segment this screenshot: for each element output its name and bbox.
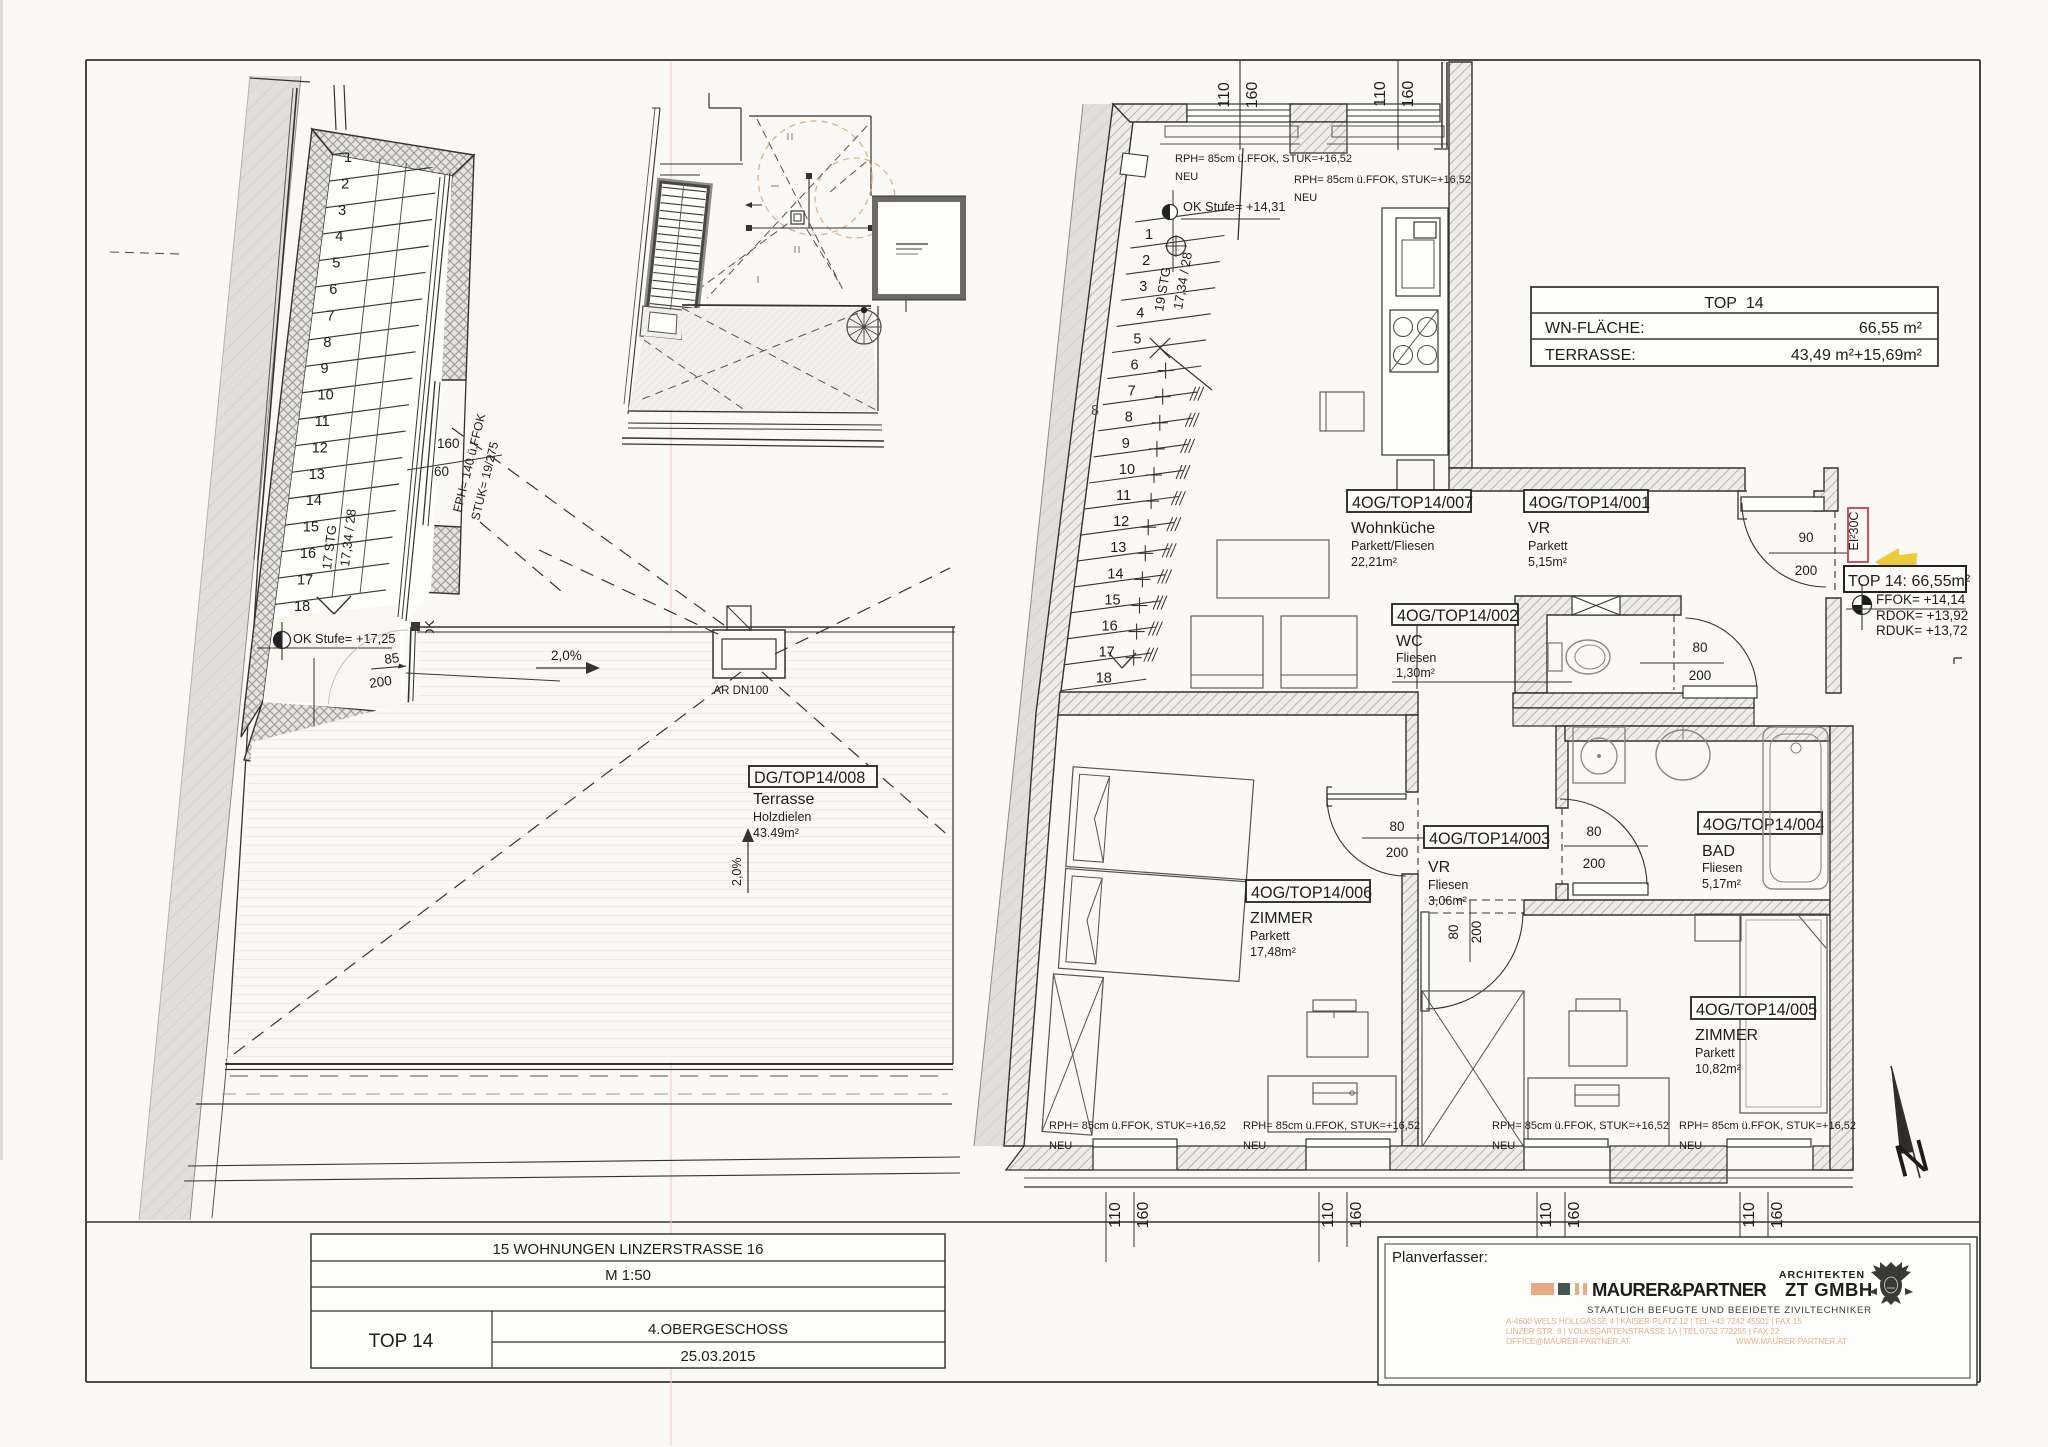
svg-text:22,21m²: 22,21m² xyxy=(1351,555,1397,569)
svg-text:NEU: NEU xyxy=(1175,171,1198,183)
svg-text:8: 8 xyxy=(323,335,331,351)
svg-text:RPH= 85cm ü.FFOK, STUK=+16,52: RPH= 85cm ü.FFOK, STUK=+16,52 xyxy=(1243,1120,1420,1132)
svg-text:9: 9 xyxy=(1122,436,1130,452)
svg-text:13: 13 xyxy=(309,467,325,483)
svg-text:200: 200 xyxy=(1583,856,1606,871)
svg-text:5: 5 xyxy=(1133,331,1141,347)
svg-text:Parkett: Parkett xyxy=(1250,929,1290,943)
svg-text:10: 10 xyxy=(1119,462,1135,478)
svg-text:WWW.MAURER-PARTNER.AT: WWW.MAURER-PARTNER.AT xyxy=(1736,1337,1847,1346)
svg-text:OK Stufe= +17,25: OK Stufe= +17,25 xyxy=(293,631,395,646)
svg-text:16: 16 xyxy=(1102,619,1118,635)
svg-text:160: 160 xyxy=(1348,1202,1365,1229)
svg-text:12: 12 xyxy=(1113,514,1129,530)
svg-text:200: 200 xyxy=(1689,668,1712,683)
svg-text:14: 14 xyxy=(306,493,322,509)
svg-text:10: 10 xyxy=(318,388,334,404)
svg-text:RPH= 85cm ü.FFOK, STUK=+16,52: RPH= 85cm ü.FFOK, STUK=+16,52 xyxy=(1294,174,1471,186)
svg-text:17: 17 xyxy=(297,572,313,588)
svg-text:FFOK= +14,14: FFOK= +14,14 xyxy=(1876,592,1966,607)
svg-text:4.OBERGESCHOSS: 4.OBERGESCHOSS xyxy=(648,1321,788,1338)
svg-text:160: 160 xyxy=(1769,1202,1786,1229)
svg-text:110: 110 xyxy=(1216,82,1233,108)
svg-text:4OG/TOP14/002: 4OG/TOP14/002 xyxy=(1397,607,1518,625)
svg-text:Wohnküche: Wohnküche xyxy=(1351,520,1435,537)
svg-text:Holzdielen: Holzdielen xyxy=(753,810,811,824)
svg-text:43,49 m²+15,69m²: 43,49 m²+15,69m² xyxy=(1791,347,1923,364)
svg-text:2: 2 xyxy=(1142,253,1150,269)
svg-text:6: 6 xyxy=(1131,358,1139,374)
svg-text:2,0%: 2,0% xyxy=(551,648,582,663)
svg-text:9: 9 xyxy=(321,361,329,377)
svg-text:RPH= 85cm ü.FFOK, STUK=+16,52: RPH= 85cm ü.FFOK, STUK=+16,52 xyxy=(1679,1120,1856,1132)
svg-text:TOP 14: TOP 14 xyxy=(369,1331,434,1352)
svg-text:80: 80 xyxy=(1692,640,1707,655)
svg-text:200: 200 xyxy=(368,673,392,691)
svg-text:4OG/TOP14/006: 4OG/TOP14/006 xyxy=(1251,884,1372,902)
svg-text:43.49m²: 43.49m² xyxy=(753,826,799,840)
svg-text:Terrasse: Terrasse xyxy=(753,791,814,808)
svg-text:TERRASSE:: TERRASSE: xyxy=(1545,347,1636,364)
svg-text:8: 8 xyxy=(1125,410,1133,426)
svg-text:110: 110 xyxy=(1741,1202,1758,1228)
svg-text:ZT GMBH: ZT GMBH xyxy=(1785,1279,1873,1300)
svg-text:15 WOHNUNGEN LINZERSTRASSE 16: 15 WOHNUNGEN LINZERSTRASSE 16 xyxy=(493,1241,764,1258)
svg-text:ZIMMER: ZIMMER xyxy=(1250,910,1313,927)
svg-text:Parkett/Fliesen: Parkett/Fliesen xyxy=(1351,539,1434,553)
svg-text:5,15m²: 5,15m² xyxy=(1528,555,1567,569)
svg-text:11: 11 xyxy=(315,414,330,430)
svg-text:NEU: NEU xyxy=(1679,1140,1702,1152)
svg-text:160: 160 xyxy=(1135,1202,1152,1229)
svg-text:160: 160 xyxy=(1400,81,1417,108)
svg-text:WN-FLÄCHE:: WN-FLÄCHE: xyxy=(1545,319,1645,337)
svg-text:2,0%: 2,0% xyxy=(730,858,744,887)
svg-text:18: 18 xyxy=(1096,671,1112,687)
svg-text:5: 5 xyxy=(332,256,340,272)
svg-text:17,48m²: 17,48m² xyxy=(1250,945,1296,959)
svg-text:BAD: BAD xyxy=(1702,843,1735,860)
svg-text:25.03.2015: 25.03.2015 xyxy=(680,1348,755,1365)
svg-text:11: 11 xyxy=(1116,488,1131,504)
svg-text:7: 7 xyxy=(1128,384,1136,400)
svg-text:12: 12 xyxy=(312,440,328,456)
svg-text:15: 15 xyxy=(1104,592,1120,608)
svg-text:66,55 m²: 66,55 m² xyxy=(1859,320,1923,337)
svg-text:4OG/TOP14/005: 4OG/TOP14/005 xyxy=(1696,1001,1817,1019)
svg-text:RPH= 85cm ü.FFOK, STUK=+16,52: RPH= 85cm ü.FFOK, STUK=+16,52 xyxy=(1049,1120,1226,1132)
svg-text:WC: WC xyxy=(1396,633,1423,650)
svg-text:EI²30C: EI²30C xyxy=(1847,512,1861,551)
svg-text:RPH= 85cm ü.FFOK, STUK=+16,52: RPH= 85cm ü.FFOK, STUK=+16,52 xyxy=(1175,153,1352,165)
svg-text:RDUK= +13,72: RDUK= +13,72 xyxy=(1876,623,1968,638)
svg-text:80: 80 xyxy=(1446,924,1461,939)
svg-text:4OG/TOP14/007: 4OG/TOP14/007 xyxy=(1352,494,1473,512)
svg-text:85: 85 xyxy=(383,650,400,667)
svg-text:MAURER&PARTNER: MAURER&PARTNER xyxy=(1592,1279,1766,1300)
svg-text:200: 200 xyxy=(1795,563,1818,578)
svg-text:LINZER STR. 8 | VOLKSGARTENSTR: LINZER STR. 8 | VOLKSGARTENSTRASSE 1A | … xyxy=(1506,1327,1780,1336)
svg-text:200: 200 xyxy=(1386,845,1409,860)
svg-text:Parkett: Parkett xyxy=(1695,1046,1735,1060)
svg-text:Fliesen: Fliesen xyxy=(1428,878,1468,892)
svg-text:60: 60 xyxy=(434,464,449,479)
svg-text:5,17m²: 5,17m² xyxy=(1702,877,1741,891)
svg-text:4OG/TOP14/003: 4OG/TOP14/003 xyxy=(1429,830,1550,848)
svg-text:3: 3 xyxy=(1139,279,1147,295)
svg-text:Parkett: Parkett xyxy=(1528,539,1568,553)
svg-text:Fliesen: Fliesen xyxy=(1702,861,1742,875)
svg-text:110: 110 xyxy=(1538,1202,1555,1228)
svg-text:90: 90 xyxy=(1798,530,1813,545)
svg-text:7: 7 xyxy=(326,308,334,324)
svg-text:A-4600 WELS HOLLGASSE 4 | KAIS: A-4600 WELS HOLLGASSE 4 | KAISER-PLATZ 1… xyxy=(1506,1317,1802,1326)
svg-text:M 1:50: M 1:50 xyxy=(605,1267,651,1284)
svg-text:OK Stufe= +14,31: OK Stufe= +14,31 xyxy=(1183,199,1285,214)
svg-text:NEU: NEU xyxy=(1294,192,1317,204)
svg-text:80: 80 xyxy=(1586,824,1601,839)
svg-text:4: 4 xyxy=(335,229,343,245)
svg-text:3,06m²: 3,06m² xyxy=(1428,894,1467,908)
svg-text:110: 110 xyxy=(1320,1202,1337,1228)
svg-text:VR: VR xyxy=(1528,520,1550,537)
svg-text:RPH= 85cm ü.FFOK, STUK=+16,52: RPH= 85cm ü.FFOK, STUK=+16,52 xyxy=(1492,1120,1669,1132)
svg-text:Fliesen: Fliesen xyxy=(1396,651,1436,665)
svg-text:110: 110 xyxy=(1372,81,1389,107)
svg-text:Planverfasser:: Planverfasser: xyxy=(1392,1249,1488,1266)
svg-text:160: 160 xyxy=(1244,82,1261,109)
svg-text:STAATLICH BEFUGTE UND BEEIDETE: STAATLICH BEFUGTE UND BEEIDETE ZIVILTECH… xyxy=(1587,1305,1872,1316)
svg-text:1: 1 xyxy=(1145,227,1153,243)
svg-text:6: 6 xyxy=(329,282,337,298)
svg-text:TOP 14: TOP 14 xyxy=(1704,295,1763,312)
svg-text:110: 110 xyxy=(1107,1202,1124,1228)
svg-text:NEU: NEU xyxy=(1243,1140,1266,1152)
svg-text:80: 80 xyxy=(1389,819,1404,834)
svg-text:18: 18 xyxy=(294,599,310,615)
svg-text:17: 17 xyxy=(1099,645,1115,661)
svg-text:2: 2 xyxy=(341,176,349,192)
svg-text:1,30m²: 1,30m² xyxy=(1396,666,1435,680)
svg-text:160: 160 xyxy=(1566,1202,1583,1229)
svg-text:OFFICE@MAURER-PARTNER.AT: OFFICE@MAURER-PARTNER.AT xyxy=(1506,1337,1630,1346)
svg-text:RDOK= +13,92: RDOK= +13,92 xyxy=(1876,608,1968,623)
svg-text:VR: VR xyxy=(1428,859,1450,876)
svg-text:160: 160 xyxy=(437,436,460,451)
svg-text:16: 16 xyxy=(300,546,316,562)
svg-text:10,82m²: 10,82m² xyxy=(1695,1062,1741,1076)
svg-text:8: 8 xyxy=(1091,403,1099,419)
svg-text:NEU: NEU xyxy=(1492,1140,1515,1152)
svg-text:ZIMMER: ZIMMER xyxy=(1695,1027,1758,1044)
svg-text:4: 4 xyxy=(1136,305,1144,321)
svg-text:200: 200 xyxy=(1469,921,1484,944)
svg-text:DG/TOP14/008: DG/TOP14/008 xyxy=(754,769,865,787)
svg-text:15: 15 xyxy=(303,520,319,536)
svg-text:4OG/TOP14/001: 4OG/TOP14/001 xyxy=(1529,494,1650,512)
svg-text:14: 14 xyxy=(1107,566,1123,582)
svg-text:13: 13 xyxy=(1110,540,1126,556)
svg-text:TOP 14: 66,55m²: TOP 14: 66,55m² xyxy=(1848,573,1971,590)
svg-text:NEU: NEU xyxy=(1049,1140,1072,1152)
svg-text:3: 3 xyxy=(338,203,346,219)
